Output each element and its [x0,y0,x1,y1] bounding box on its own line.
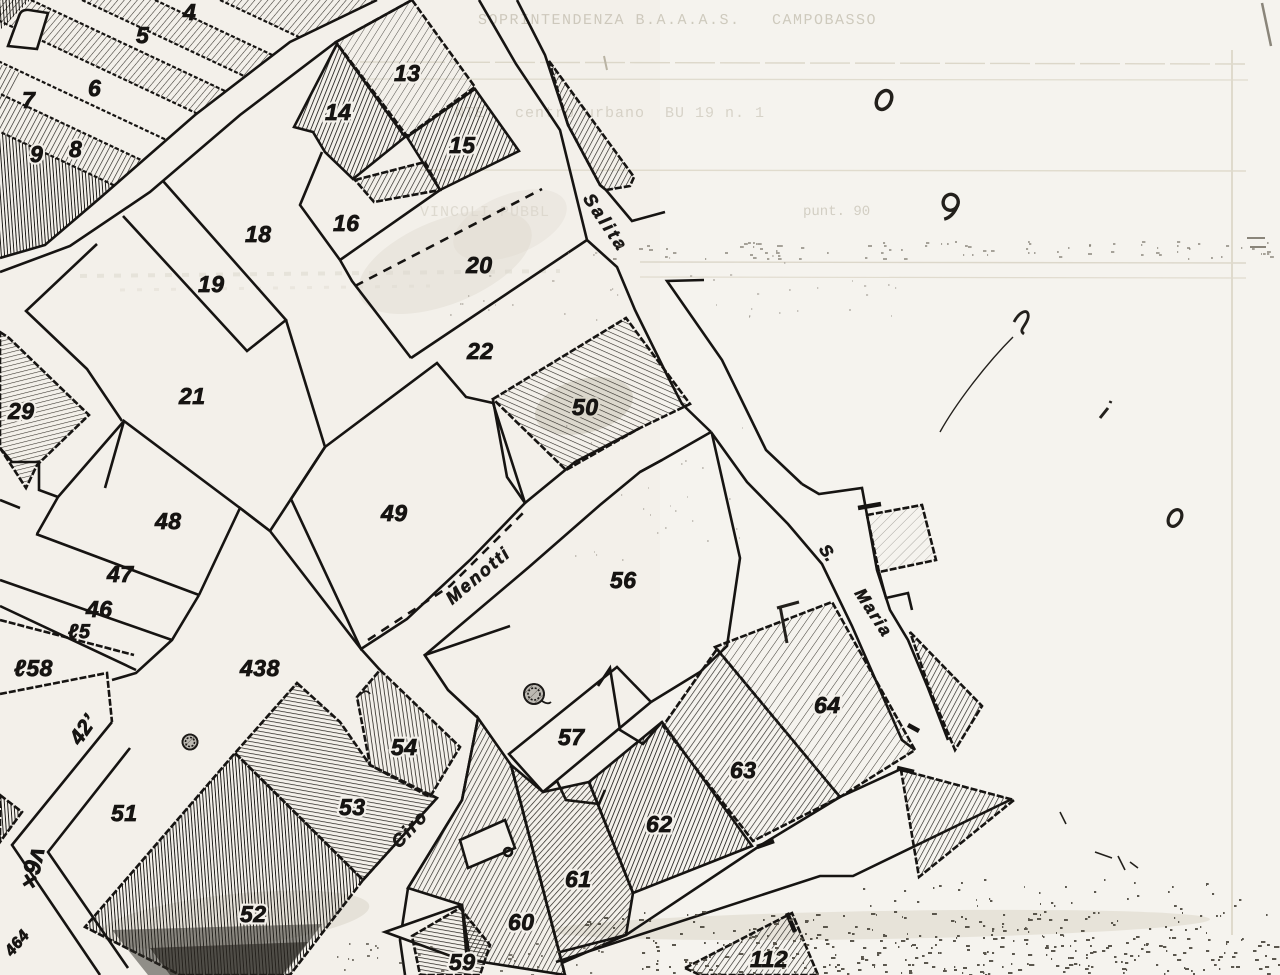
svg-text:63: 63 [730,757,757,783]
svg-text:4: 4 [182,0,196,25]
svg-text:14: 14 [325,99,352,125]
svg-text:15: 15 [449,132,476,158]
svg-text:54: 54 [391,734,418,760]
svg-text:punt. 90: punt. 90 [803,204,870,220]
svg-text:57: 57 [558,724,585,750]
svg-text:61: 61 [565,866,592,892]
svg-text:9: 9 [30,141,43,167]
svg-text:53: 53 [339,794,366,820]
svg-text:62: 62 [646,811,673,837]
svg-text:7: 7 [22,87,36,113]
svg-text:29: 29 [7,398,35,424]
svg-text:60: 60 [508,909,535,935]
svg-text:18: 18 [245,221,272,247]
svg-text:16: 16 [333,210,360,236]
svg-text:52: 52 [240,901,267,927]
svg-text:20: 20 [465,252,493,278]
svg-text:46: 46 [85,596,113,622]
svg-text:438: 438 [239,655,280,681]
svg-text:13: 13 [394,60,421,86]
svg-text:ℓ5: ℓ5 [68,621,91,643]
svg-text:48: 48 [154,508,182,534]
svg-text:21: 21 [178,383,206,409]
svg-text:SOPRINTENDENZA B.A.A.A.S. C: SOPRINTENDENZA B.A.A.A.S. CAMPOBASSO [478,12,877,29]
svg-text:49: 49 [380,500,408,526]
svg-text:ℓ58: ℓ58 [14,655,53,681]
svg-text:22: 22 [466,338,494,364]
svg-text:64: 64 [814,692,841,718]
svg-text:47: 47 [106,561,134,587]
svg-text:59: 59 [449,949,476,975]
svg-text:50: 50 [572,394,599,420]
svg-text:56: 56 [610,567,637,593]
svg-text:19: 19 [198,271,225,297]
svg-text:5: 5 [136,22,150,48]
svg-text:NTE centro urbano BU 19 n.: NTE centro urbano BU 19 n. 1 [455,105,765,122]
svg-text:51: 51 [111,800,138,826]
svg-text:8: 8 [69,136,82,162]
svg-text:6: 6 [88,75,101,101]
